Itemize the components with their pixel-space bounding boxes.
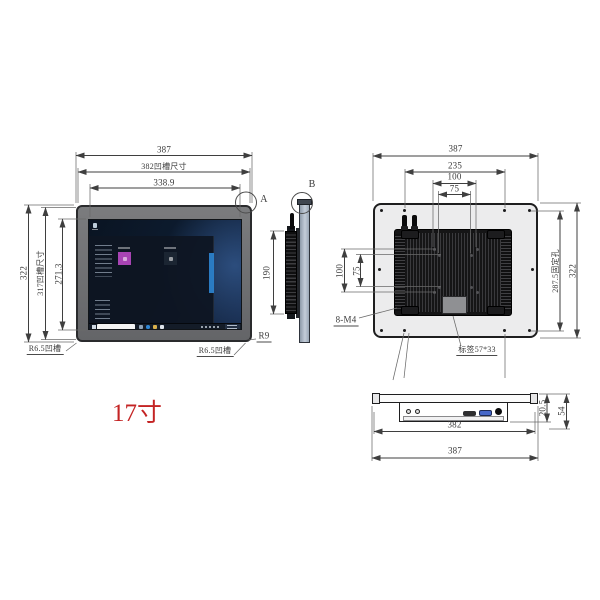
- antenna-connector-base: [411, 226, 418, 230]
- tray-icon: [209, 326, 211, 328]
- dim-back-vesa75-h: 75: [450, 184, 459, 193]
- antenna-connector-base: [401, 226, 408, 230]
- screw-hole: [528, 209, 531, 212]
- dim-front-width-outer: 387: [157, 146, 171, 155]
- dim-front-height-groove: 317凹槽尺寸: [37, 250, 45, 295]
- screw-hole: [403, 329, 406, 332]
- start-menu-app-list: [95, 245, 112, 277]
- side-view-heatsink-stub: [287, 314, 295, 319]
- vga-port: [479, 410, 492, 416]
- product-sticker-area: [442, 296, 467, 314]
- screw-hole: [403, 209, 406, 212]
- dim-back-height-outer: 322: [568, 263, 577, 277]
- detail-marker-b: B: [309, 180, 316, 190]
- start-button-icon: [92, 325, 96, 329]
- dim-side-heatsink-height: 190: [262, 265, 271, 279]
- screw-hole: [378, 268, 381, 271]
- heatsink-corner-bracket: [487, 230, 505, 239]
- tile-group-header: [118, 247, 130, 249]
- show-desktop-strip: [241, 324, 243, 330]
- screw-hole: [380, 329, 383, 332]
- dim-bottom-width-groove: 382: [447, 421, 461, 430]
- dim-back-vesa75-v: 75: [352, 266, 361, 275]
- dim-back-vesa100-v: 100: [336, 263, 345, 277]
- vesa-hole-100: [433, 248, 436, 251]
- vesa-hole-100: [476, 248, 479, 251]
- vesa-hole-100: [476, 291, 479, 294]
- vesa-hole-100: [433, 291, 436, 294]
- edge-browser-icon: [146, 325, 150, 329]
- recycle-bin-label: [92, 229, 98, 230]
- label-groove-radius-left: R6.5凹槽: [27, 345, 64, 355]
- dim-front-width-groove: 382凹槽尺寸: [141, 163, 186, 171]
- dim-back-mount-span: 235: [448, 161, 462, 170]
- dim-front-width-screen: 338.9: [153, 179, 174, 188]
- tile-group-header: [164, 247, 176, 249]
- screw-hole: [503, 209, 506, 212]
- screw-hole: [528, 329, 531, 332]
- audio-jack-port: [406, 409, 411, 414]
- start-tile: [118, 252, 131, 265]
- taskbar-search-input: [97, 324, 135, 329]
- dim-bottom-depth-front: 20.5: [539, 400, 548, 417]
- heatsink-corner-bracket: [401, 306, 419, 315]
- dim-back-fixing-holes: 287.5固定孔: [552, 249, 560, 293]
- tray-icon: [213, 326, 215, 328]
- file-explorer-icon: [153, 325, 157, 329]
- side-view-antenna: [290, 213, 294, 229]
- heatsink-side-fins: [395, 234, 405, 311]
- start-tile: [164, 252, 177, 265]
- tray-icon: [217, 326, 219, 328]
- dim-front-height-outer: 322: [19, 266, 28, 280]
- technical-drawing-canvas: 387 382凹槽尺寸 338.9 322 317凹槽尺寸 271.3 A R9…: [0, 0, 600, 600]
- tray-icon: [201, 326, 203, 328]
- recycle-bin-icon: [93, 223, 97, 228]
- dim-front-height-screen: 271.3: [54, 263, 63, 284]
- dim-bottom-depth-total: 54: [558, 406, 567, 415]
- label-sticker-size: 标签57*33: [456, 346, 497, 356]
- screw-hole: [531, 268, 534, 271]
- screw-hole: [380, 209, 383, 212]
- dim-bottom-width-outer: 387: [448, 447, 462, 456]
- power-jack-port: [495, 408, 502, 415]
- dim-back-width-outer: 387: [448, 145, 462, 154]
- label-groove-radius-right: R6.5凹槽: [197, 347, 234, 357]
- start-tile-strip: [209, 253, 214, 293]
- taskbar-clock: [225, 324, 240, 330]
- label-corner-radius-r9: R9: [257, 331, 272, 342]
- side-view-heatsink-fins: [285, 231, 297, 314]
- vesa-hole-75: [438, 254, 441, 257]
- back-view-heatsink: [394, 229, 512, 316]
- label-screw-spec-8m4: 8-M4: [334, 315, 359, 326]
- heatsink-corner-bracket: [487, 306, 505, 315]
- side-view-top-cap: [297, 199, 312, 205]
- heatsink-side-fins: [501, 234, 511, 311]
- front-view-screen: [88, 219, 242, 330]
- dim-back-vesa100-h: 100: [447, 173, 461, 182]
- start-menu-system-list: [95, 300, 110, 319]
- product-size-label: 17寸: [112, 393, 162, 429]
- bottom-view-end-cap: [372, 393, 380, 404]
- vesa-hole-75: [470, 286, 473, 289]
- vesa-hole-75: [438, 286, 441, 289]
- heatsink-corner-bracket: [401, 230, 419, 239]
- detail-marker-a: A: [260, 195, 267, 205]
- vesa-hole-75: [470, 254, 473, 257]
- task-view-icon: [139, 325, 143, 329]
- tray-icon: [205, 326, 207, 328]
- store-icon: [160, 325, 164, 329]
- audio-jack-port: [415, 409, 420, 414]
- io-connector-port: [463, 411, 476, 416]
- screw-hole: [503, 329, 506, 332]
- side-view-panel: [299, 203, 310, 343]
